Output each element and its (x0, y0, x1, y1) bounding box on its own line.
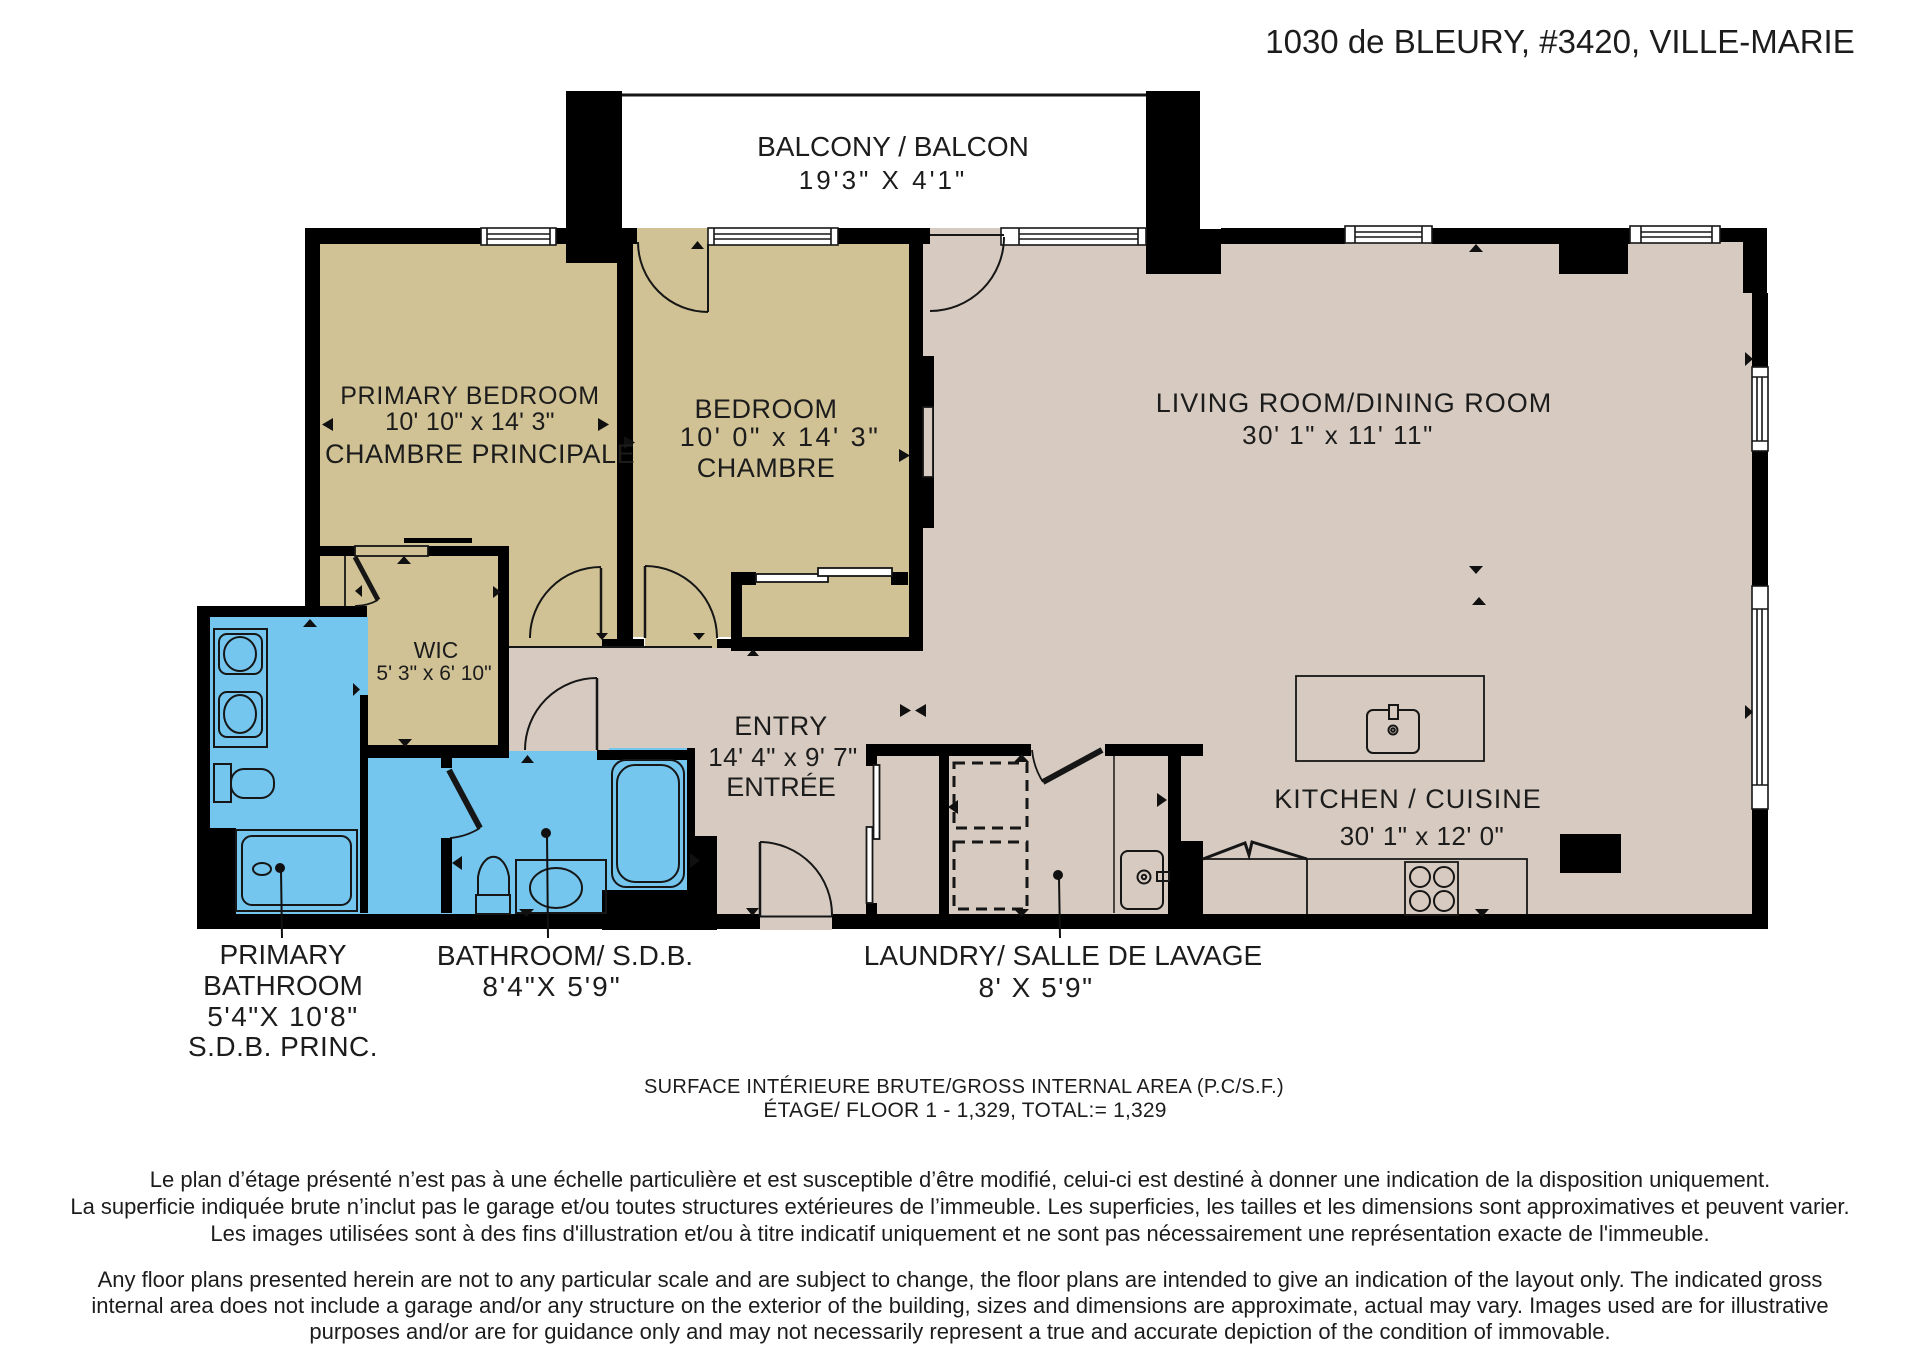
svg-text:ENTRY: ENTRY (734, 711, 828, 741)
svg-text:CHAMBRE: CHAMBRE (697, 453, 836, 483)
svg-text:WIC: WIC (414, 637, 459, 663)
svg-text:14' 4" x 9' 7": 14' 4" x 9' 7" (708, 742, 858, 772)
svg-text:LIVING ROOM/DINING ROOM: LIVING ROOM/DINING ROOM (1156, 388, 1553, 418)
svg-text:S.D.B. PRINC.: S.D.B. PRINC. (188, 1031, 378, 1062)
svg-text:LAUNDRY/ SALLE DE LAVAGE: LAUNDRY/ SALLE DE LAVAGE (864, 940, 1262, 971)
svg-text:PRIMARY BEDROOM: PRIMARY BEDROOM (340, 382, 600, 410)
svg-text:Any floor plans presented here: Any floor plans presented herein are not… (98, 1267, 1823, 1292)
svg-text:10' 0" x 14' 3": 10' 0" x 14' 3" (680, 422, 881, 452)
svg-text:10' 10" x 14' 3": 10' 10" x 14' 3" (385, 408, 555, 436)
svg-text:internal area does not include: internal area does not include a garage … (91, 1293, 1828, 1318)
svg-text:ÉTAGE/ FLOOR 1 - 1,329, TOTAL:: ÉTAGE/ FLOOR 1 - 1,329, TOTAL:= 1,329 (763, 1099, 1166, 1122)
svg-text:30' 1" x 11' 11": 30' 1" x 11' 11" (1242, 420, 1434, 450)
svg-text:BALCONY / BALCON: BALCONY / BALCON (757, 131, 1029, 162)
svg-text:KITCHEN / CUISINE: KITCHEN / CUISINE (1274, 784, 1542, 814)
svg-text:8' X 5'9": 8' X 5'9" (978, 972, 1093, 1003)
svg-text:SURFACE INTÉRIEURE BRUTE/GROSS: SURFACE INTÉRIEURE BRUTE/GROSS INTERNAL … (644, 1075, 1284, 1098)
svg-text:ENTRÉE: ENTRÉE (726, 772, 836, 802)
svg-text:8'4"X 5'9": 8'4"X 5'9" (482, 971, 621, 1002)
svg-text:BATHROOM: BATHROOM (203, 970, 363, 1001)
svg-text:La superficie indiquée brute n: La superficie indiquée brute n’inclut pa… (70, 1194, 1849, 1219)
svg-text:PRIMARY: PRIMARY (219, 939, 346, 970)
svg-text:BEDROOM: BEDROOM (694, 394, 837, 424)
svg-text:5' 3" x 6' 10": 5' 3" x 6' 10" (376, 662, 491, 685)
svg-text:purposes and/or are for guidan: purposes and/or are for guidance only an… (309, 1319, 1610, 1344)
svg-text:30' 1" x 12' 0": 30' 1" x 12' 0" (1340, 821, 1505, 851)
svg-text:BATHROOM/ S.D.B.: BATHROOM/ S.D.B. (437, 940, 693, 971)
svg-text:19'3" X 4'1": 19'3" X 4'1" (799, 165, 967, 195)
svg-text:Le plan d’étage présenté n’est: Le plan d’étage présenté n’est pas à une… (150, 1167, 1770, 1192)
svg-text:1030 de BLEURY, #3420, VILLE-M: 1030 de BLEURY, #3420, VILLE-MARIE (1265, 23, 1855, 60)
svg-text:5'4"X 10'8": 5'4"X 10'8" (207, 1001, 358, 1032)
svg-text:Les images utilisées sont à de: Les images utilisées sont à des fins d'i… (210, 1221, 1709, 1246)
svg-text:CHAMBRE PRINCIPALE: CHAMBRE PRINCIPALE (325, 439, 635, 469)
